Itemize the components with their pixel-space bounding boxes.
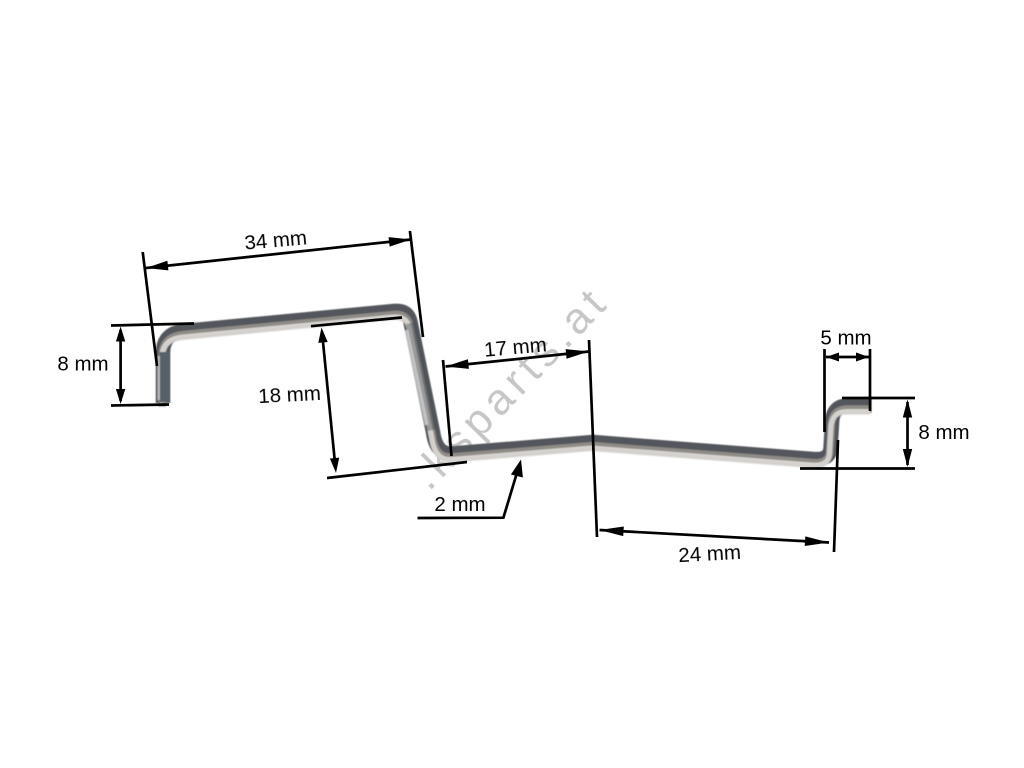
svg-text:8 mm: 8 mm xyxy=(918,421,969,444)
svg-text:2 mm: 2 mm xyxy=(434,493,485,516)
svg-text:24 mm: 24 mm xyxy=(678,541,742,567)
svg-text:18 mm: 18 mm xyxy=(258,382,322,408)
svg-text:8 mm: 8 mm xyxy=(57,353,108,376)
svg-text:5 mm: 5 mm xyxy=(820,327,871,350)
